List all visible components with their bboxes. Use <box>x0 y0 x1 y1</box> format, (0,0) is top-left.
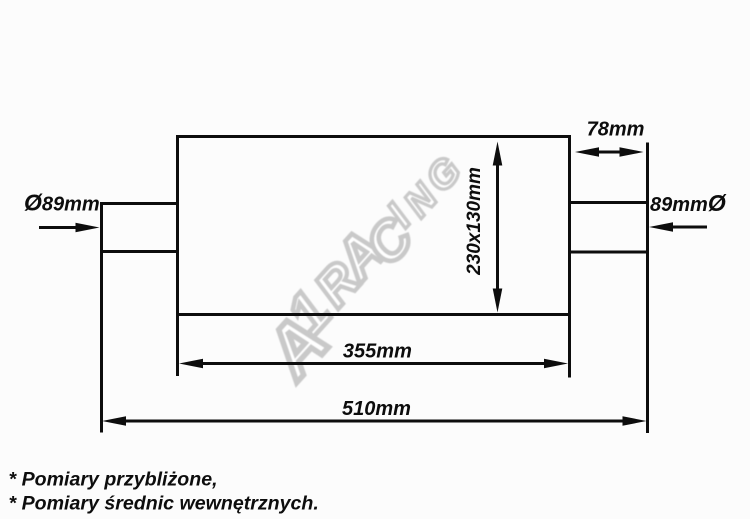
svg-text:78mm: 78mm <box>587 119 645 141</box>
svg-text:355mm: 355mm <box>343 341 412 363</box>
svg-text:89mmØ: 89mmØ <box>650 190 727 216</box>
svg-text:* Pomiary średnic wewnętrznych: * Pomiary średnic wewnętrznych. <box>9 493 319 515</box>
svg-text:230x130mm: 230x130mm <box>464 167 485 276</box>
svg-text:* Pomiary przybliżone,: * Pomiary przybliżone, <box>9 469 218 491</box>
svg-text:510mm: 510mm <box>342 398 411 420</box>
svg-text:Ø89mm: Ø89mm <box>24 190 100 216</box>
